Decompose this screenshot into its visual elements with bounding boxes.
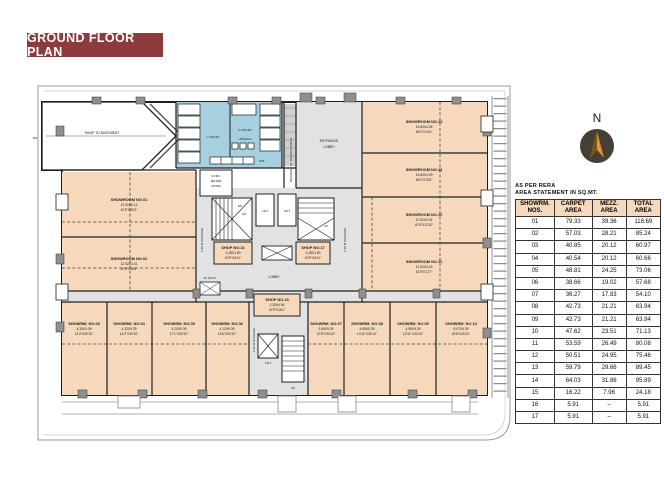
- cell-carpet-area: 40.85: [554, 241, 592, 253]
- cell-mezz-area: 24.25: [592, 265, 626, 277]
- cell-mezz-area: 20.12: [592, 241, 626, 253]
- cell-showroom-no: 13: [516, 363, 555, 375]
- cell-carpet-area: 53.59: [554, 338, 592, 350]
- cell-mezz-area: –: [592, 399, 626, 411]
- cell-mezz-area: 17.83: [592, 290, 626, 302]
- cell-total-area: 75.46: [626, 351, 660, 363]
- svg-text:SHOWRM. NO.04: SHOWRM. NO.04: [113, 321, 145, 326]
- svg-text:10'9"X5'11": 10'9"X5'11": [305, 256, 322, 260]
- table-row: 17 5.91 – 5.91: [516, 412, 661, 424]
- svg-text:SHOWRM. NO.06: SHOWRM. NO.06: [211, 321, 243, 326]
- svg-text:14'11"X30'10": 14'11"X30'10": [403, 332, 424, 336]
- svg-text:SHOP NO.16: SHOP NO.16: [221, 245, 245, 250]
- cell-showroom-no: 12: [516, 351, 555, 363]
- svg-text:42'5"X14'6": 42'5"X14'6": [121, 267, 139, 271]
- cell-total-area: 63.94: [626, 302, 660, 314]
- rera-note-line2: AREA STATEMENT IN SQ.MT.: [515, 190, 663, 197]
- showroom-06-area: [206, 302, 249, 395]
- cell-showroom-no: 02: [516, 229, 555, 241]
- gents-toilet-label: G.TOILET: [238, 128, 252, 132]
- cell-mezz-area: 39.36: [592, 217, 626, 229]
- lobby-label: LOBBY: [268, 275, 280, 279]
- table-row: 05 48.81 24.25 73.06: [516, 265, 661, 277]
- svg-text:14'11"X30'10": 14'11"X30'10": [357, 332, 378, 336]
- cell-showroom-no: 09: [516, 314, 555, 326]
- showroom-07-area: [308, 302, 344, 395]
- meter-panels-label: RESIDENT EL. METER PANELS: [289, 138, 293, 182]
- cell-carpet-area: 42.73: [554, 302, 592, 314]
- ramp-label: RAMP TO BASEMENT: [85, 131, 120, 135]
- cell-total-area: 60.66: [626, 253, 660, 265]
- table-row: 07 36.27 17.83 54.10: [516, 290, 661, 302]
- stair-dn-label: DN: [238, 204, 242, 208]
- cell-showroom-no: 17: [516, 412, 555, 424]
- stair-up-label: UP: [242, 212, 246, 216]
- svg-text:SHOWROOM NO.01: SHOWROOM NO.01: [111, 197, 148, 202]
- rear-stair-up-label: UP: [291, 386, 295, 390]
- cell-carpet-area: 59.79: [554, 363, 592, 375]
- cell-total-area: 80.08: [626, 338, 660, 350]
- bottom-walkway: [62, 396, 478, 414]
- lift-1-label: LIFT: [262, 209, 268, 213]
- cell-showroom-no: 11: [516, 338, 555, 350]
- cell-showroom-no: 08: [516, 302, 555, 314]
- svg-text:5.20X9.39: 5.20X9.39: [171, 327, 186, 331]
- cell-mezz-area: 23.51: [592, 326, 626, 338]
- cell-carpet-area: 64.03: [554, 375, 592, 387]
- table-row: 15 16.22 7.96 24.18: [516, 387, 661, 399]
- cell-carpet-area: 5.91: [554, 412, 592, 424]
- svg-text:SHOWROOM NO.11: SHOWROOM NO.11: [406, 259, 443, 264]
- svg-text:SHOWROOM NO.02: SHOWROOM NO.02: [111, 256, 148, 261]
- svg-text:10'9"X5'11": 10'9"X5'11": [225, 256, 242, 260]
- cell-showroom-no: 01: [516, 217, 555, 229]
- svg-text:ROOM: ROOM: [211, 184, 221, 188]
- cell-total-area: 85.24: [626, 229, 660, 241]
- svg-text:12.92X3.91: 12.92X3.91: [416, 218, 433, 222]
- svg-text:SHOWRM. NO.08: SHOWRM. NO.08: [351, 321, 383, 326]
- cell-total-area: 118.69: [626, 217, 660, 229]
- svg-text:48'0"X14'4": 48'0"X14'4": [416, 130, 434, 134]
- cell-mezz-area: 20.12: [592, 253, 626, 265]
- cell-showroom-no: 15: [516, 387, 555, 399]
- table-header-cell: MEZZ.AREA: [592, 200, 626, 217]
- table-row: 06 38.66 19.02 57.68: [516, 277, 661, 289]
- lift-2-label: LIFT: [284, 209, 290, 213]
- cell-carpet-area: 48.81: [554, 265, 592, 277]
- cell-total-area: 63.94: [626, 314, 660, 326]
- cell-total-area: 5.91: [626, 399, 660, 411]
- svg-text:3.86X9.39: 3.86X9.39: [318, 327, 333, 331]
- table-row: 12 50.51 24.95 75.46: [516, 351, 661, 363]
- staircase-right: [298, 198, 334, 240]
- cell-total-area: 57.68: [626, 277, 660, 289]
- svg-text:3.28X1.80: 3.28X1.80: [225, 251, 240, 255]
- cell-carpet-area: 79.33: [554, 217, 592, 229]
- table-row: 02 57.03 28.21 85.24: [516, 229, 661, 241]
- cell-mezz-area: 21.21: [592, 302, 626, 314]
- svg-text:12.92X4.15: 12.92X4.15: [416, 265, 433, 269]
- table-row: 08 42.73 21.21 63.94: [516, 302, 661, 314]
- stair-right-up-label: UP: [324, 224, 328, 228]
- showroom-04-area: [107, 302, 152, 395]
- ff-duct-label: FF DUCT: [204, 276, 217, 280]
- cell-total-area: 71.13: [626, 326, 660, 338]
- cell-showroom-no: 04: [516, 253, 555, 265]
- area-statement: AS PER RERA AREA STATEMENT IN SQ.MT. SHO…: [515, 183, 663, 424]
- svg-text:12'8"X30'10": 12'8"X30'10": [317, 332, 336, 336]
- cell-carpet-area: 5.91: [554, 399, 592, 411]
- cell-carpet-area: 16.22: [554, 387, 592, 399]
- svg-text:12.92X6.14: 12.92X6.14: [121, 203, 138, 207]
- svg-text:1.50 M PASSAGE: 1.50 M PASSAGE: [252, 328, 256, 352]
- cell-showroom-no: 14: [516, 375, 555, 387]
- svg-text:SHOWROOM NO.12: SHOWROOM NO.12: [406, 212, 443, 217]
- cell-mezz-area: 24.95: [592, 351, 626, 363]
- cell-total-area: 73.06: [626, 265, 660, 277]
- table-row: 13 59.79 29.66 89.45: [516, 363, 661, 375]
- svg-text:16'8"X30'10": 16'8"X30'10": [452, 332, 471, 336]
- showroom-09-area: [390, 302, 436, 395]
- cell-mezz-area: 19.02: [592, 277, 626, 289]
- svg-text:10'9"X16'2": 10'9"X16'2": [269, 308, 287, 312]
- cell-showroom-no: 03: [516, 241, 555, 253]
- table-row: 11 53.59 26.49 80.08: [516, 338, 661, 350]
- svg-text:4.55X9.39: 4.55X9.39: [405, 327, 420, 331]
- svg-text:13'6"X30'10": 13'6"X30'10": [218, 332, 237, 336]
- table-row: 14 64.03 31.86 95.89: [516, 375, 661, 387]
- svg-text:SHOWROOM NO.13: SHOWROOM NO.13: [406, 167, 443, 172]
- cell-showroom-no: 10: [516, 326, 555, 338]
- svg-text:42'5"X13'7": 42'5"X13'7": [416, 270, 434, 274]
- svg-text:SHOWRM. NO.05: SHOWRM. NO.05: [163, 321, 195, 326]
- cell-carpet-area: 42.73: [554, 314, 592, 326]
- svg-text:12.92X4.41: 12.92X4.41: [121, 262, 138, 266]
- cell-mezz-area: 7.96: [592, 387, 626, 399]
- svg-text:SHOP NO.17: SHOP NO.17: [301, 245, 324, 250]
- north-label: N: [593, 111, 602, 125]
- cell-carpet-area: 40.54: [554, 253, 592, 265]
- svg-text:SHOWRM. NO.10: SHOWRM. NO.10: [445, 321, 477, 326]
- floor-plan-sheet: { "title": "GROUND FLOOR PLAN", "compass…: [0, 0, 664, 478]
- svg-text:3.28X1.80: 3.28X1.80: [305, 251, 320, 255]
- cell-mezz-area: 21.21: [592, 314, 626, 326]
- svg-text:42'5"X12'10": 42'5"X12'10": [415, 223, 434, 227]
- svg-text:SHOWRM. NO.03: SHOWRM. NO.03: [68, 321, 100, 326]
- svg-text:4.35X9.39: 4.35X9.39: [76, 327, 91, 331]
- table-row: 03 40.85 20.12 60.97: [516, 241, 661, 253]
- svg-text:42'5"X20'2": 42'5"X20'2": [121, 208, 139, 212]
- svg-text:14'2"X30'10": 14'2"X30'10": [120, 332, 139, 336]
- svg-text:4.55X9.39: 4.55X9.39: [359, 327, 374, 331]
- cell-total-area: 5.91: [626, 412, 660, 424]
- table-row: 04 40.54 20.12 60.66: [516, 253, 661, 265]
- showroom-03-area: [62, 302, 107, 395]
- side-margin-hatch: [492, 96, 508, 398]
- table-header-cell: CARPETAREA: [554, 200, 592, 217]
- cell-carpet-area: 36.27: [554, 290, 592, 302]
- svg-text:48'0"X13'5": 48'0"X13'5": [416, 178, 434, 182]
- svg-text:3.28X4.94: 3.28X4.94: [269, 303, 284, 307]
- meter-room-label: COM.L: [211, 174, 221, 178]
- rera-note-line1: AS PER RERA: [515, 183, 663, 190]
- cell-mezz-area: –: [592, 412, 626, 424]
- urinals-label: URINALS: [238, 137, 251, 141]
- wash-basin-label: W.B.: [259, 159, 266, 163]
- svg-text:1.50 M PASSAGE: 1.50 M PASSAGE: [200, 228, 204, 252]
- cell-mezz-area: 28.21: [592, 229, 626, 241]
- entrance-lobby-label: ENTRANCE: [320, 139, 339, 143]
- showroom-08-area: [344, 302, 390, 395]
- table-row: 09 42.73 21.21 63.94: [516, 314, 661, 326]
- svg-text:4.32X9.39: 4.32X9.39: [121, 327, 136, 331]
- svg-text:METER: METER: [211, 179, 222, 183]
- cell-carpet-area: 50.51: [554, 351, 592, 363]
- cell-mezz-area: 31.86: [592, 375, 626, 387]
- table-header-cell: SHOWRM.NOS.: [516, 200, 555, 217]
- cell-mezz-area: 26.49: [592, 338, 626, 350]
- rear-lift-label: LIFT: [265, 361, 271, 365]
- showroom-05-area: [152, 302, 206, 395]
- table-header-row: SHOWRM.NOS. CARPETAREA MEZZ.AREA TOTALAR…: [516, 200, 661, 217]
- cell-mezz-area: 29.66: [592, 363, 626, 375]
- ladies-toilet-label: L.TOILET: [207, 135, 220, 139]
- svg-text:5.07X9.39: 5.07X9.39: [453, 327, 468, 331]
- svg-text:SHOWRM. NO.09: SHOWRM. NO.09: [397, 321, 429, 326]
- svg-text:17'1"X30'10": 17'1"X30'10": [170, 332, 189, 336]
- cell-showroom-no: 05: [516, 265, 555, 277]
- svg-text:1.50 M PASSAGE: 1.50 M PASSAGE: [343, 228, 347, 252]
- svg-text:14.63X4.38: 14.63X4.38: [416, 125, 433, 129]
- svg-text:14'3"X30'10": 14'3"X30'10": [75, 332, 94, 336]
- svg-text:LOBBY: LOBBY: [323, 145, 335, 149]
- area-table: SHOWRM.NOS. CARPETAREA MEZZ.AREA TOTALAR…: [515, 199, 661, 424]
- showroom-10-area: [436, 302, 487, 395]
- cell-carpet-area: 57.03: [554, 229, 592, 241]
- cell-carpet-area: 47.62: [554, 326, 592, 338]
- cell-total-area: 60.97: [626, 241, 660, 253]
- cell-carpet-area: 38.66: [554, 277, 592, 289]
- svg-text:SHOWRM. NO.07: SHOWRM. NO.07: [310, 321, 342, 326]
- cell-total-area: 89.45: [626, 363, 660, 375]
- cell-showroom-no: 07: [516, 290, 555, 302]
- table-row: 01 79.33 39.36 118.69: [516, 217, 661, 229]
- svg-text:4.12X9.39: 4.12X9.39: [219, 327, 234, 331]
- svg-text:SHOWROOM NO.14: SHOWROOM NO.14: [406, 119, 443, 124]
- cell-showroom-no: 06: [516, 277, 555, 289]
- table-row: 10 47.62 23.51 71.13: [516, 326, 661, 338]
- svg-text:SHOP NO.15: SHOP NO.15: [265, 297, 289, 302]
- cell-total-area: 24.18: [626, 387, 660, 399]
- table-row: 16 5.91 – 5.91: [516, 399, 661, 411]
- rear-staircase: [282, 336, 304, 382]
- ramp-dn-label: DN: [33, 136, 37, 140]
- svg-text:14.63X4.09: 14.63X4.09: [416, 173, 433, 177]
- north-compass: N: [580, 111, 614, 163]
- cell-total-area: 54.10: [626, 290, 660, 302]
- cell-total-area: 95.89: [626, 375, 660, 387]
- table-header-cell: TOTALAREA: [626, 200, 660, 217]
- cell-showroom-no: 16: [516, 399, 555, 411]
